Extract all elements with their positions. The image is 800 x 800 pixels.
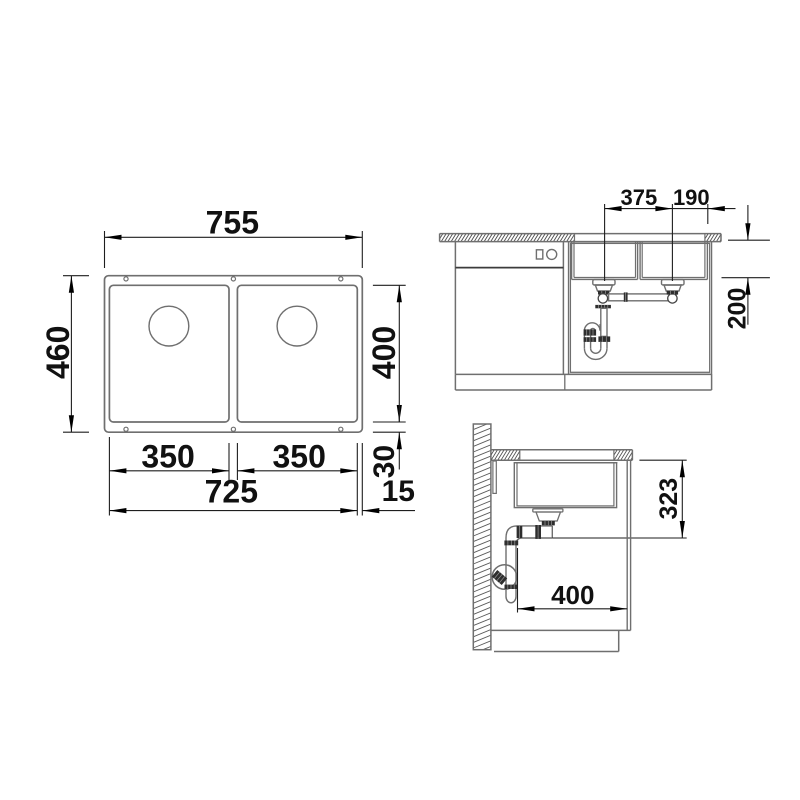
- svg-text:200: 200: [723, 288, 751, 330]
- svg-text:375: 375: [621, 185, 658, 210]
- svg-text:755: 755: [206, 205, 259, 241]
- svg-text:323: 323: [655, 478, 683, 520]
- svg-text:30: 30: [368, 445, 401, 478]
- svg-text:400: 400: [551, 580, 594, 610]
- svg-text:15: 15: [382, 475, 415, 508]
- svg-text:400: 400: [366, 326, 402, 379]
- svg-text:725: 725: [205, 474, 258, 510]
- svg-text:190: 190: [673, 185, 710, 210]
- svg-text:460: 460: [40, 326, 76, 379]
- svg-text:350: 350: [141, 438, 194, 474]
- svg-text:350: 350: [273, 438, 326, 474]
